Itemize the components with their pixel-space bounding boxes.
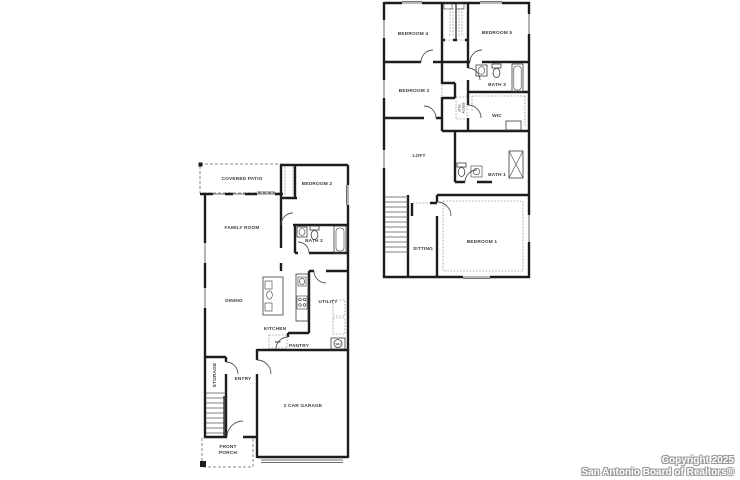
room-label-bath2: BATH 2 xyxy=(305,238,323,244)
bath2-sink-icon xyxy=(297,227,307,237)
washer-dryer-icon xyxy=(333,300,345,334)
walls xyxy=(200,164,348,458)
room-label-bedroom5: BEDROOM 5 xyxy=(482,30,513,36)
attic-access-label-line2: ACCESS xyxy=(462,102,466,113)
room-label-family-room: FAMILY ROOM xyxy=(225,225,260,231)
room-label-bath1: BATH 1 xyxy=(488,172,506,178)
bath3-sink-icon xyxy=(476,65,487,76)
room-label-bedroom1: BEDROOM 1 xyxy=(467,239,498,245)
room-label-storage: STORAGE xyxy=(212,362,218,387)
copyright-line2: San Antonio Board of Realtors® xyxy=(581,467,734,479)
bath2-bathtub-icon xyxy=(334,226,346,253)
copyright-watermark: Copyright 2025 San Antonio Board of Real… xyxy=(581,455,734,479)
bedroom1-tray-ceiling xyxy=(443,201,523,271)
room-label-porch-line1: FRONT xyxy=(219,444,236,450)
room-label-bedroom3: BEDROOM 3 xyxy=(399,88,430,94)
bath3-bathtub-icon xyxy=(512,64,523,92)
garage-door-lines xyxy=(261,460,343,463)
bath2-toilet-icon xyxy=(310,226,319,240)
room-label-bedroom2: BEDROOM 2 xyxy=(302,181,333,187)
walls xyxy=(383,2,530,278)
room-label-utility: UTILITY xyxy=(318,299,338,305)
bedroom2-closet-dashes xyxy=(285,167,293,196)
stairs-icon xyxy=(206,393,226,437)
room-label-dining: DINING xyxy=(225,298,243,304)
room-label-covered-patio: COVERED PATIO xyxy=(222,176,263,182)
room-label-porch-line2: PORCH xyxy=(219,450,237,456)
bath1-toilet-icon xyxy=(457,163,466,177)
window-marks xyxy=(205,185,348,308)
room-label-sitting: SITTING xyxy=(413,246,433,252)
room-label-bedroom4: BEDROOM 4 xyxy=(398,31,429,37)
kitchen-counter xyxy=(296,274,308,321)
second-floor-plan: ATTIC ACCESS xyxy=(380,0,535,282)
first-floor-plan: COVERED PATIO BEDROOM 2 FAMILY ROOM BATH… xyxy=(195,160,355,472)
stove-icon xyxy=(297,296,307,309)
room-label-wic: WIC xyxy=(492,113,502,119)
room-label-garage: 2 CAR GARAGE xyxy=(284,403,323,409)
copyright-line1: Copyright 2025 xyxy=(581,455,734,467)
bath3-toilet-icon xyxy=(492,64,501,78)
room-label-wh: WH xyxy=(336,342,341,346)
room-label-kitchen: KITCHEN xyxy=(264,326,287,332)
room-label-bath3: BATH 3 xyxy=(488,82,506,88)
bath1-sink-icon xyxy=(471,166,482,177)
attic-access-label-line1: ATTIC xyxy=(458,104,462,112)
stairs-icon xyxy=(385,197,408,252)
door-arcs xyxy=(421,50,482,216)
hall-closets xyxy=(444,3,465,40)
bath1-shower-icon xyxy=(509,151,523,178)
kitchen-island xyxy=(263,277,283,315)
room-label-ref: REF xyxy=(275,340,281,344)
room-label-pantry: PANTRY xyxy=(289,343,310,349)
room-label-entry: ENTRY xyxy=(235,376,252,382)
room-label-loft: LOFT xyxy=(412,153,425,159)
floorplan-image: COVERED PATIO BEDROOM 2 FAMILY ROOM BATH… xyxy=(0,0,740,480)
attic-access: ATTIC ACCESS xyxy=(456,97,467,119)
